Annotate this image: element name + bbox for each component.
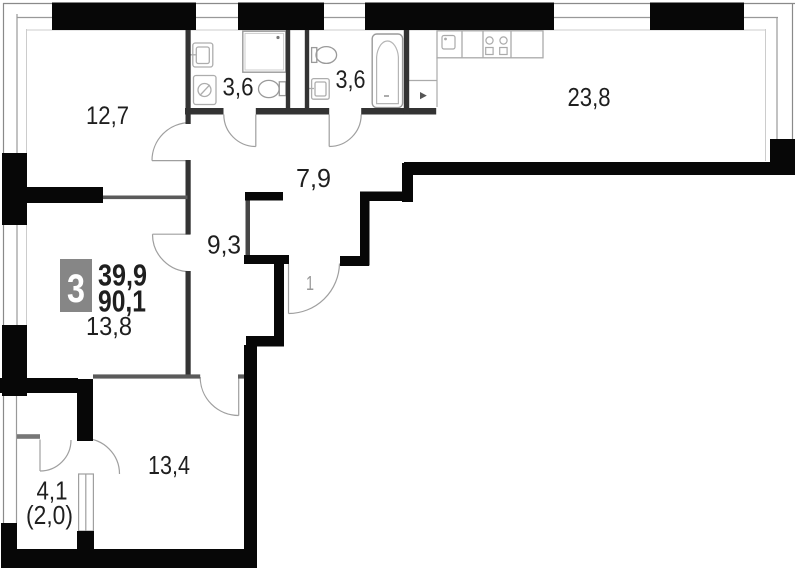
svg-text:3,6: 3,6 [223,74,254,102]
svg-text:(2,0): (2,0) [26,500,73,530]
svg-text:3: 3 [67,267,85,311]
svg-text:9,3: 9,3 [207,230,241,260]
svg-text:90,1: 90,1 [98,284,146,319]
svg-text:3,6: 3,6 [336,66,366,94]
svg-text:23,8: 23,8 [568,82,611,112]
svg-text:13,4: 13,4 [148,450,190,480]
svg-text:1: 1 [306,273,314,295]
svg-text:7,9: 7,9 [296,163,331,193]
svg-text:12,7: 12,7 [86,102,129,130]
